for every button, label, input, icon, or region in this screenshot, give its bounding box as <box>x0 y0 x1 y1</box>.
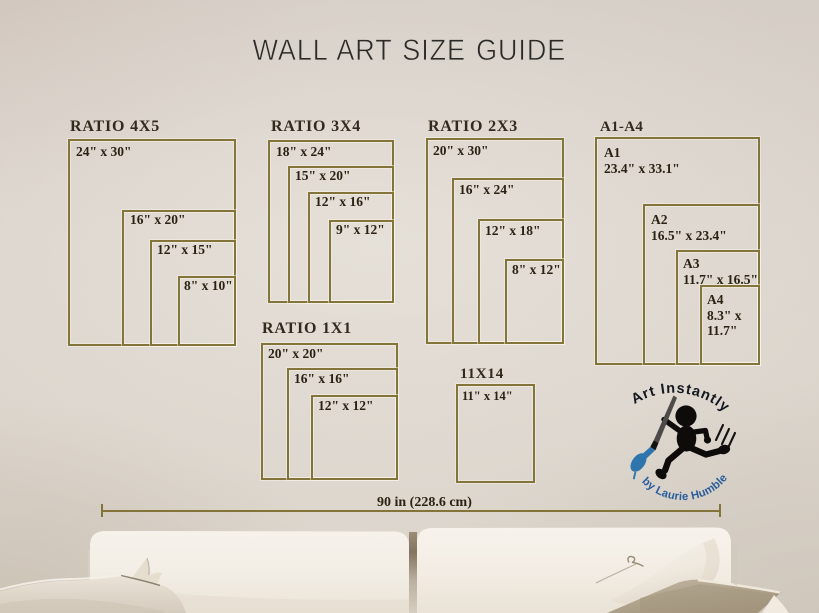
svg-text:by Laurie Humble: by Laurie Humble <box>639 472 730 503</box>
